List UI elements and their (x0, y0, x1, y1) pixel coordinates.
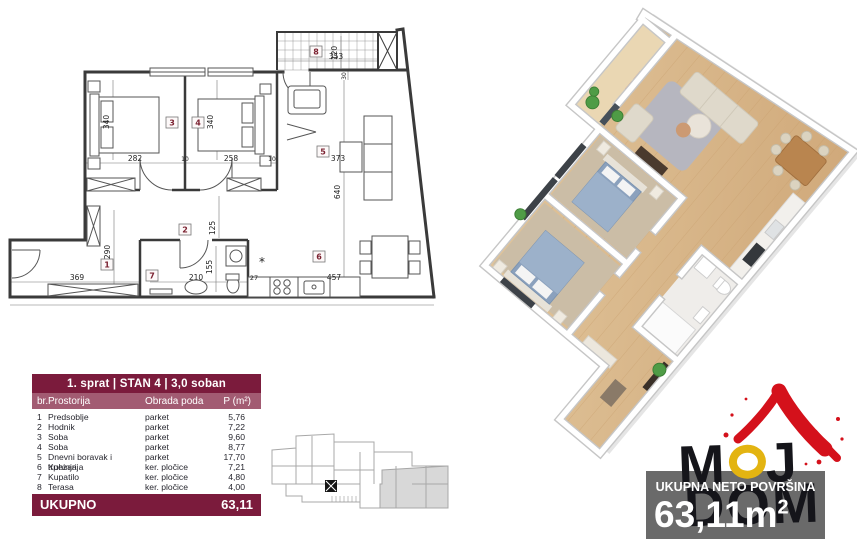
table-row: 5Dnevni boravak i trpezarijaparket17,70 (32, 452, 261, 462)
column-header-area: P (m²) (215, 396, 261, 407)
dimension-label: 340 (102, 115, 111, 130)
table-row: 4Sobaparket8,77 (32, 442, 261, 452)
dimension-label: 640 (333, 185, 342, 200)
total-label: UKUPNO (40, 497, 96, 512)
area-table: 1. sprat | STAN 4 | 3,0 soban br. Prosto… (32, 374, 261, 516)
column-header-num: br. (32, 396, 48, 407)
room-number-labels: 1 2 3 4 5 6 7 8 (101, 46, 329, 281)
dimension-label: 340 (206, 115, 215, 130)
table-header: br. Prostorija Obrada poda P (m²) (32, 393, 261, 409)
boiler-symbol: * (259, 255, 265, 269)
room-label: 2 (182, 226, 188, 235)
summary-value: 63,11m2 (654, 496, 825, 533)
column-header-floor: Obrada poda (145, 396, 215, 407)
summary-label: UKUPNA NETO POVRŠINA (646, 480, 825, 494)
flyer-canvas: 340 282 340 258 373 640 353 120 30 290 3… (0, 0, 857, 539)
highlighted-apartment (380, 466, 448, 508)
key-plan (262, 426, 454, 514)
dimension-label: 10 (181, 156, 189, 163)
room-label: 7 (149, 272, 155, 281)
dimension-label: 155 (205, 260, 214, 275)
room-label: 3 (169, 119, 175, 128)
summary-box: UKUPNA NETO POVRŠINA 63,11m2 (646, 471, 825, 539)
dimension-label: 27 (250, 274, 258, 282)
total-value: 63,11 (221, 497, 253, 512)
dimension-labels: 340 282 340 258 373 640 353 120 30 290 3… (70, 46, 348, 282)
table-row: 8Terasaker. pločice4,00 (32, 482, 261, 492)
room-label: 6 (316, 253, 322, 262)
terrace-tiles (277, 32, 378, 70)
room-label: 8 (313, 48, 319, 57)
table-row: 1Predsobljeparket5,76 (32, 412, 261, 422)
dimension-label: 125 (208, 221, 217, 236)
doors (12, 72, 310, 278)
dimension-label: 282 (128, 154, 143, 163)
dimension-label: 210 (189, 273, 204, 282)
column-header-room: Prostorija (48, 396, 145, 407)
table-total-row: UKUPNO 63,11 (32, 494, 261, 516)
table-row: 7Kupatiloker. pločice4,80 (32, 472, 261, 482)
room-label: 1 (104, 261, 110, 270)
table-row: 3Sobaparket9,60 (32, 432, 261, 442)
table-row: 6Kuhinjaker. pločice7,21 (32, 462, 261, 472)
dimension-label: 457 (327, 273, 342, 282)
table-title: 1. sprat | STAN 4 | 3,0 soban (32, 374, 261, 393)
summary-unit-sup: 2 (777, 497, 788, 519)
room-label: 5 (320, 148, 326, 157)
table-body: 1Predsobljeparket5,76 2Hodnikparket7,22 … (32, 409, 261, 494)
dimension-label: 120 (330, 46, 339, 61)
table-row: 2Hodnikparket7,22 (32, 422, 261, 432)
floor-plan-2d: 340 282 340 258 373 640 353 120 30 290 3… (0, 0, 450, 330)
room-label: 4 (195, 119, 201, 128)
dimension-label: 369 (70, 273, 85, 282)
dimension-label: 30 (341, 72, 348, 80)
stairwell-marker (325, 480, 337, 492)
dimension-label: 373 (331, 154, 346, 163)
dimension-label: 10 (268, 156, 276, 163)
windows (150, 68, 253, 76)
dimension-label: 290 (103, 245, 112, 260)
dimension-label: 258 (224, 154, 239, 163)
